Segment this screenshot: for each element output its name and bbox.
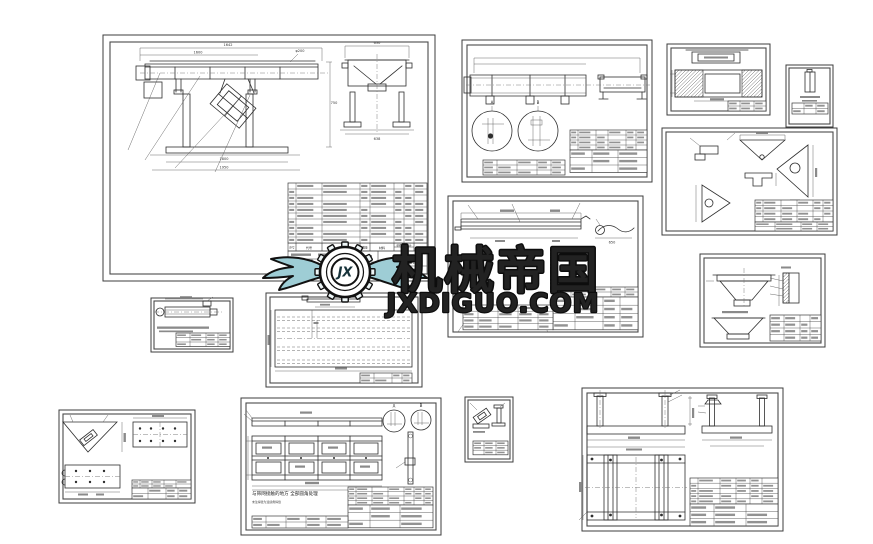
bom-h-seq: 序号 xyxy=(289,246,295,250)
bom-h-qty: 数量 xyxy=(362,246,368,250)
detail-a-label: A xyxy=(491,100,494,105)
dim-base-overall: 1950 xyxy=(220,166,229,170)
dim-overall-top: 1642 xyxy=(224,43,233,47)
detail-a-label: A xyxy=(393,404,396,409)
dim-deck: 1600 xyxy=(194,51,203,55)
frame-note-main: 与筛网接触的地方 全部圆角处理 xyxy=(252,490,318,497)
dim-bar-length: 650 xyxy=(609,241,616,245)
bom-h-material: 材料 xyxy=(379,245,385,250)
dim-end-top: 630 xyxy=(374,41,381,45)
detail-b-label: B xyxy=(537,100,540,105)
logo-monogram: JX xyxy=(335,266,354,281)
watermark-site: JXDIGUO.COM xyxy=(385,289,600,319)
dim-height: 750 xyxy=(331,101,338,105)
bom-h-code: 代号 xyxy=(306,245,312,250)
detail-b-label: B xyxy=(420,403,423,408)
drawing-canvas: 1642 1600 φ200 750 1800 1950 630 638 序号 … xyxy=(0,0,873,544)
dim-base: 1800 xyxy=(220,157,229,161)
drawing-collage: 1642 1600 φ200 750 1800 1950 630 638 序号 … xyxy=(0,0,873,544)
dim-flange: φ200 xyxy=(296,49,305,53)
sheet-small-plate xyxy=(786,65,833,127)
sheet-main-assembly: 1642 1600 φ200 750 1800 1950 630 638 序号 … xyxy=(103,35,435,281)
dim-end-bottom: 638 xyxy=(374,137,381,141)
frame-note-sub: 未注焊缝为连续角焊缝 xyxy=(252,499,281,504)
